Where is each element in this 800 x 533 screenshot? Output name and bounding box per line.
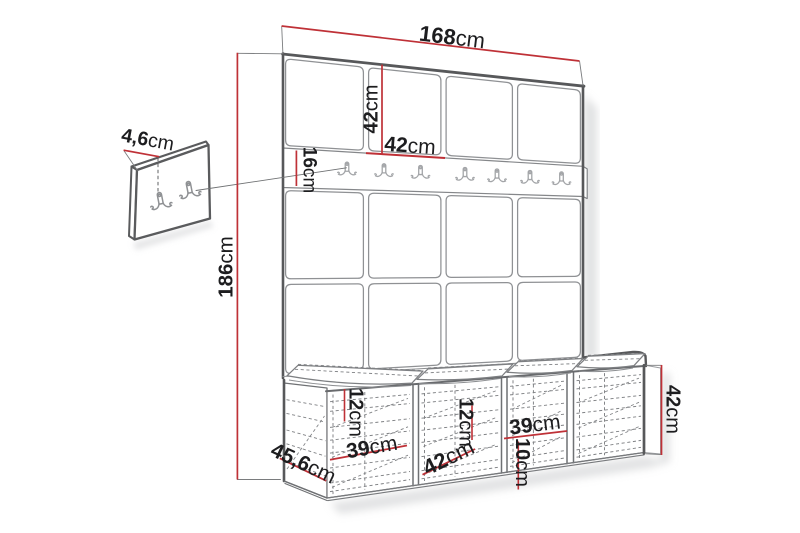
svg-text:42cm: 42cm [361,85,383,134]
svg-text:16cm: 16cm [298,147,319,193]
svg-text:42cm: 42cm [661,385,683,434]
svg-text:12cm: 12cm [454,398,476,447]
svg-text:186cm: 186cm [215,236,238,298]
svg-text:10cm: 10cm [511,438,533,487]
svg-text:12cm: 12cm [344,388,366,437]
svg-text:42cm: 42cm [384,132,437,159]
